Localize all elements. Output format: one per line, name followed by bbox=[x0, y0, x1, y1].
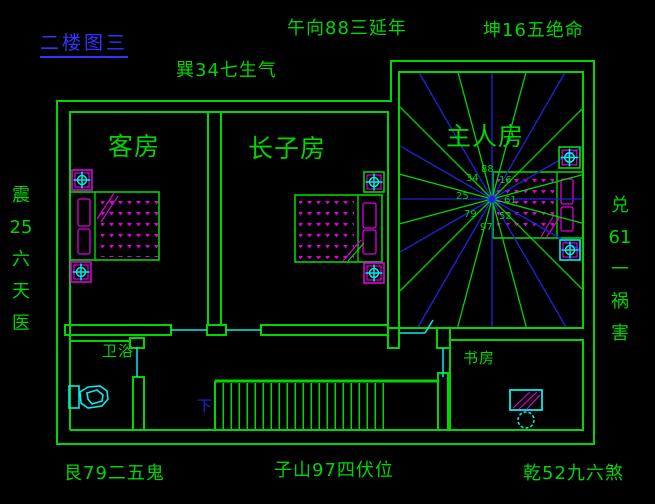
son-room-bed bbox=[295, 195, 382, 262]
center-number-79: 79 bbox=[464, 210, 477, 220]
floor-plan-canvas: 二楼图三 午向88三延年 坤16五绝命 巽34七生气 艮79二五鬼 子山97四伏… bbox=[0, 0, 655, 504]
center-number-34: 34 bbox=[466, 174, 479, 184]
room-label-study: 书房 bbox=[463, 351, 495, 366]
study-desk bbox=[510, 390, 542, 410]
center-number-97: 97 bbox=[480, 223, 493, 233]
compass-label-southwest: 坤16五绝命 bbox=[483, 22, 584, 40]
guest-room-bed bbox=[70, 192, 159, 260]
compass-label-northeast: 艮79二五鬼 bbox=[64, 465, 165, 483]
compass-label-west: 兑 61 一 祸 害 bbox=[605, 190, 635, 350]
floor-plan-drawing bbox=[0, 0, 655, 504]
wall-light-icon bbox=[364, 263, 384, 283]
compass-label-south: 午向88三延年 bbox=[287, 20, 407, 38]
wall-light-icon bbox=[559, 147, 580, 168]
toilet bbox=[69, 386, 108, 408]
room-label-guest: 客房 bbox=[108, 134, 160, 159]
compass-label-northwest: 乾52九六煞 bbox=[523, 465, 624, 483]
room-label-bathroom: 卫浴 bbox=[102, 344, 134, 359]
staircase bbox=[215, 381, 438, 430]
room-label-master: 主人房 bbox=[446, 124, 524, 149]
compass-label-north: 子山97四伏位 bbox=[274, 462, 394, 480]
compass-label-southeast: 巽34七生气 bbox=[176, 62, 277, 80]
compass-center-point bbox=[489, 196, 496, 203]
wall-light-icon bbox=[72, 170, 92, 190]
room-label-eldest-son: 长子房 bbox=[248, 136, 326, 161]
wall-light-icon bbox=[560, 240, 580, 260]
center-number-52: 52 bbox=[499, 212, 512, 222]
drawing-title: 二楼图三 bbox=[40, 34, 128, 58]
stair-steps bbox=[223, 383, 383, 429]
study-stool bbox=[518, 412, 534, 428]
center-number-16: 16 bbox=[499, 176, 512, 186]
wall-light-icon bbox=[71, 262, 91, 282]
stairs-down-label: 下 bbox=[197, 399, 213, 414]
center-number-61: 61 bbox=[504, 196, 517, 206]
center-number-25: 25 bbox=[456, 192, 469, 202]
compass-label-east: 震 25 六 天 医 bbox=[6, 180, 36, 340]
wall-light-icon bbox=[364, 172, 384, 192]
center-number-88: 88 bbox=[481, 165, 494, 175]
